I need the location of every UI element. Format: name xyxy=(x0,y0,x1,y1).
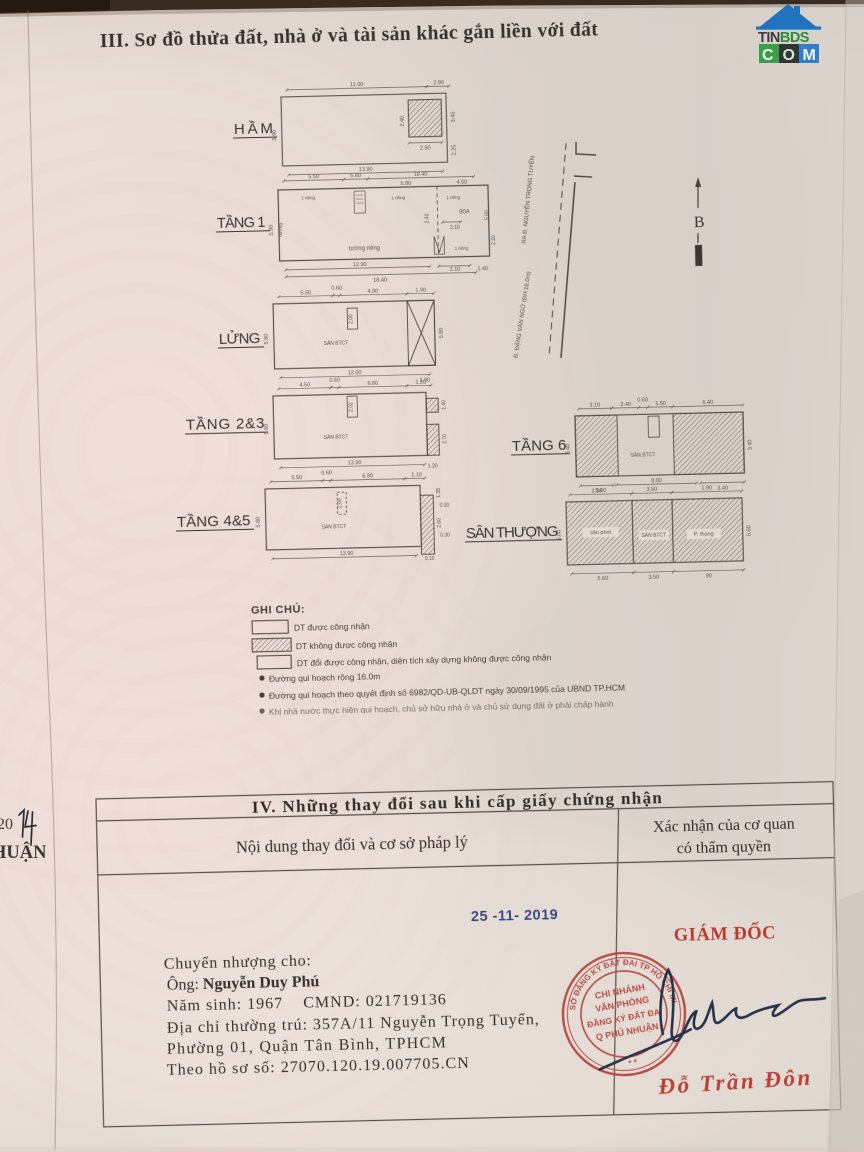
svg-text:TẦNG 2&3: TẦNG 2&3 xyxy=(186,415,265,434)
svg-text:1 riêng: 1 riêng xyxy=(446,195,460,200)
svg-text:1.38: 1.38 xyxy=(436,488,442,498)
svg-text:Xác nhận của cơ quan: Xác nhận của cơ quan xyxy=(653,815,795,835)
svg-text:1 riêng: 1 riêng xyxy=(454,246,468,251)
svg-text:GIÁM ĐỐC: GIÁM ĐỐC xyxy=(674,922,777,946)
svg-text:4.90: 4.90 xyxy=(367,288,378,294)
svg-text:13.90: 13.90 xyxy=(348,460,362,466)
svg-text:2.20: 2.20 xyxy=(491,235,497,245)
svg-text:1 riêng: 1 riêng xyxy=(391,195,405,200)
svg-text:1.40: 1.40 xyxy=(441,400,447,410)
svg-text:O: O xyxy=(783,47,795,64)
svg-text:6.90: 6.90 xyxy=(362,473,373,479)
svg-text:SÀN BTCT: SÀN BTCT xyxy=(321,523,346,531)
svg-text:đường: đường xyxy=(278,223,283,237)
svg-text:2.02: 2.02 xyxy=(348,402,354,412)
svg-text:12.00: 12.00 xyxy=(348,370,362,376)
svg-text:6.40: 6.40 xyxy=(702,400,713,406)
svg-text:3.50: 3.50 xyxy=(648,575,659,581)
svg-text:HẦM: HẦM xyxy=(234,120,274,138)
svg-text:3.45: 3.45 xyxy=(450,112,456,123)
svg-text:có thẩm quyền: có thẩm quyền xyxy=(677,838,772,857)
svg-text:2.90: 2.90 xyxy=(433,80,444,86)
svg-text:3.10: 3.10 xyxy=(450,225,460,231)
svg-text:90: 90 xyxy=(706,574,712,580)
svg-text:1.20: 1.20 xyxy=(415,379,426,385)
svg-text:8.00: 8.00 xyxy=(651,478,662,484)
svg-text:TẦNG 1: TẦNG 1 xyxy=(217,214,266,232)
svg-text:5.90: 5.90 xyxy=(269,225,275,236)
svg-text:2.40: 2.40 xyxy=(425,213,431,223)
svg-text:2.40: 2.40 xyxy=(620,402,631,408)
svg-text:0.60: 0.60 xyxy=(329,377,340,383)
svg-text:90A: 90A xyxy=(459,210,470,216)
svg-text:0.10: 0.10 xyxy=(425,556,435,562)
svg-text:1.50: 1.50 xyxy=(655,401,666,407)
svg-text:4.50: 4.50 xyxy=(456,180,467,186)
svg-text:SÀN BTCT: SÀN BTCT xyxy=(324,339,349,347)
svg-text:5.60: 5.60 xyxy=(350,173,361,179)
svg-text:2.00: 2.00 xyxy=(337,498,343,508)
svg-text:sân phơi: sân phơi xyxy=(590,530,611,537)
svg-text:5.80: 5.80 xyxy=(256,517,262,528)
svg-text:SÀN BTCT: SÀN BTCT xyxy=(324,433,349,441)
svg-text:5.50: 5.50 xyxy=(300,290,311,296)
svg-text:HUẬN: HUẬN xyxy=(0,841,47,863)
svg-text:3.40: 3.40 xyxy=(748,439,754,450)
svg-text:1.20: 1.20 xyxy=(428,463,438,469)
svg-text:5.80: 5.80 xyxy=(439,328,445,339)
svg-text:tường riêng: tường riêng xyxy=(349,246,380,253)
svg-text:2.40: 2.40 xyxy=(399,116,405,127)
svg-text:11.00: 11.00 xyxy=(350,82,363,88)
svg-text:4.50: 4.50 xyxy=(299,382,310,388)
svg-text:5.80: 5.80 xyxy=(400,181,411,187)
svg-text:2.70: 2.70 xyxy=(442,434,448,444)
svg-text:18.40: 18.40 xyxy=(373,277,387,283)
svg-text:0.60: 0.60 xyxy=(637,397,648,403)
svg-text:25 -11- 2019: 25 -11- 2019 xyxy=(471,907,559,925)
svg-text:5.90: 5.90 xyxy=(272,130,278,141)
svg-text:P. thang: P. thang xyxy=(694,532,714,538)
svg-text:TẦNG 6: TẦNG 6 xyxy=(512,437,567,455)
svg-text:5.50: 5.50 xyxy=(308,174,319,180)
svg-text:5.60: 5.60 xyxy=(484,210,490,220)
svg-text:Chuyển nhượng cho:: Chuyển nhượng cho: xyxy=(164,953,311,973)
svg-text:0.60: 0.60 xyxy=(331,285,342,291)
svg-text:5.00: 5.00 xyxy=(557,530,563,541)
svg-text:20: 20 xyxy=(0,816,13,833)
svg-text:0.30: 0.30 xyxy=(440,533,450,539)
svg-text:SÀN BTCT: SÀN BTCT xyxy=(630,451,655,459)
svg-text:12.90: 12.90 xyxy=(353,262,367,268)
svg-text:0.60: 0.60 xyxy=(321,470,332,476)
svg-text:LỬNG: LỬNG xyxy=(219,329,261,348)
svg-text:0.30: 0.30 xyxy=(440,503,450,509)
svg-text:3.10: 3.10 xyxy=(449,267,460,273)
svg-text:TẦNG 4&5: TẦNG 4&5 xyxy=(177,512,251,531)
svg-text:M: M xyxy=(803,47,816,64)
svg-text:SÀN BTCT: SÀN BTCT xyxy=(641,532,666,540)
svg-text:1.10: 1.10 xyxy=(411,472,422,478)
svg-text:13.90: 13.90 xyxy=(340,551,354,557)
svg-text:3.50: 3.50 xyxy=(646,487,657,493)
svg-text:5.80: 5.80 xyxy=(264,334,270,345)
svg-text:1.40: 1.40 xyxy=(477,266,488,272)
svg-text:DT được công nhận: DT được công nhận xyxy=(294,621,370,633)
svg-text:6.80: 6.80 xyxy=(367,381,378,387)
svg-text:3.10: 3.10 xyxy=(589,402,600,408)
svg-text:C: C xyxy=(762,47,774,64)
svg-text:3.40: 3.40 xyxy=(566,444,572,455)
svg-text:5.60: 5.60 xyxy=(597,576,608,582)
svg-text:1 riêng: 1 riêng xyxy=(301,195,315,200)
svg-text:1.90: 1.90 xyxy=(415,287,426,293)
svg-text:2.90: 2.90 xyxy=(420,146,431,152)
svg-text:5.50: 5.50 xyxy=(291,475,302,481)
svg-text:TINBDS: TINBDS xyxy=(758,30,810,46)
svg-text:5.00: 5.00 xyxy=(747,525,753,536)
svg-text:2.00: 2.00 xyxy=(348,314,354,324)
svg-text:5.60: 5.60 xyxy=(595,488,606,494)
svg-text:GHI CHÚ:: GHI CHÚ: xyxy=(251,603,305,617)
svg-text:5.80: 5.80 xyxy=(264,424,270,435)
svg-text:3.40: 3.40 xyxy=(717,485,728,491)
svg-text:B: B xyxy=(694,214,705,231)
svg-text:1.90: 1.90 xyxy=(701,486,712,492)
svg-text:2.60: 2.60 xyxy=(437,518,443,528)
svg-text:18.40: 18.40 xyxy=(414,171,428,177)
svg-text:SÂN THƯỢNG: SÂN THƯỢNG xyxy=(466,523,559,542)
svg-text:2.25: 2.25 xyxy=(451,145,457,156)
